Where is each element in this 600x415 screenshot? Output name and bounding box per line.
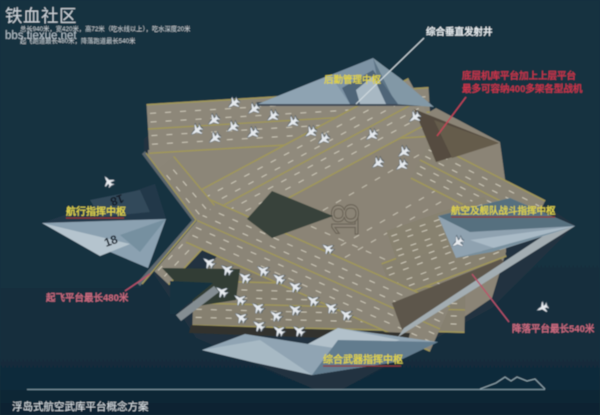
svg-text:综合武器指挥中枢: 综合武器指挥中枢 <box>323 353 403 366</box>
svg-text:浮岛式航空武库平台概念方案: 浮岛式航空武库平台概念方案 <box>12 400 149 413</box>
svg-text:后勤管理中枢: 后勤管理中枢 <box>324 74 382 86</box>
svg-text:航行指挥中枢: 航行指挥中枢 <box>66 205 126 218</box>
svg-text:综合垂直发射井: 综合垂直发射井 <box>426 26 493 38</box>
svg-text:底层机库平台加上上层平台: 底层机库平台加上上层平台 <box>461 70 577 82</box>
svg-text:最多可容纳400多架各型战机: 最多可容纳400多架各型战机 <box>462 83 583 95</box>
svg-text:18: 18 <box>325 203 367 237</box>
svg-text:降落平台最长540米: 降落平台最长540米 <box>512 323 595 335</box>
svg-text:铁血社区: 铁血社区 <box>5 6 77 26</box>
svg-text:航空及舰队战斗指挥中枢: 航空及舰队战斗指挥中枢 <box>451 205 556 217</box>
svg-text:起飞平台最长480米: 起飞平台最长480米 <box>45 292 129 304</box>
svg-text:起飞跑道最长480米，降落跑道最长540米: 起飞跑道最长480米，降落跑道最长540米 <box>20 36 136 45</box>
svg-text:总长940米，宽420米，高72米（吃水线以上），吃水深度2: 总长940米，宽420米，高72米（吃水线以上），吃水深度20米 <box>20 24 191 33</box>
